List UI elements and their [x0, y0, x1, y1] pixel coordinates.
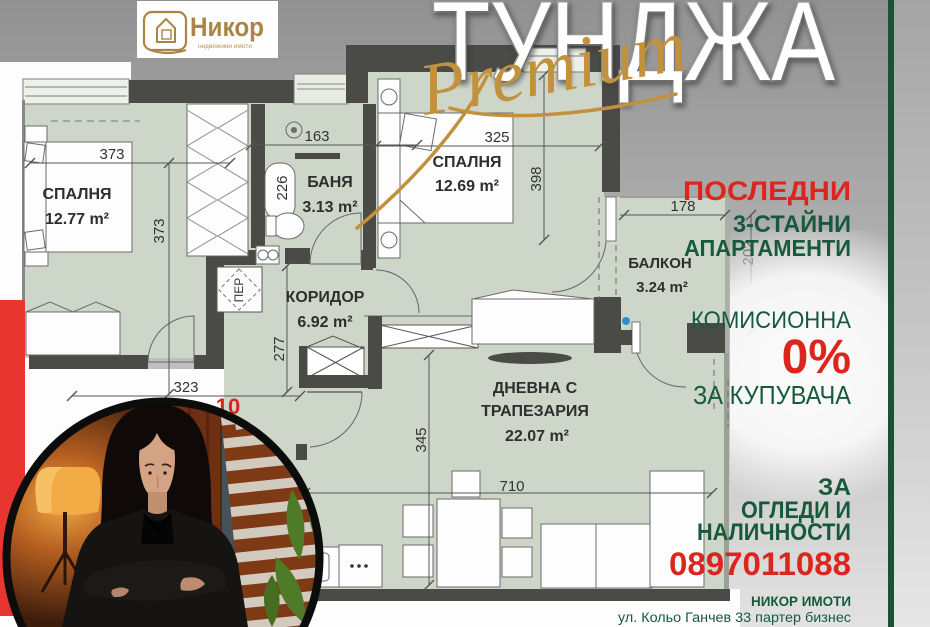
svg-text:НИКОР ИМОТИ: НИКОР ИМОТИ [751, 593, 851, 609]
svg-text:398: 398 [528, 166, 545, 191]
svg-text:3.13 m²: 3.13 m² [302, 199, 357, 216]
svg-text:345: 345 [413, 427, 430, 452]
svg-text:373: 373 [151, 218, 168, 243]
svg-text:АПАРТАМЕНТИ: АПАРТАМЕНТИ [684, 235, 851, 261]
svg-text:226: 226 [274, 175, 291, 200]
svg-text:ул. Кольо Ганчев 33 партер биз: ул. Кольо Ганчев 33 партер бизнес [618, 609, 851, 625]
svg-text:163: 163 [304, 128, 329, 145]
svg-text:БАНЯ: БАНЯ [307, 174, 353, 191]
svg-text:Никор: Никор [190, 12, 264, 42]
svg-text:325: 325 [484, 129, 509, 146]
svg-text:ПЕР: ПЕР [232, 278, 246, 303]
svg-text:0%: 0% [782, 331, 851, 384]
svg-text:3-СТАЙНИ: 3-СТАЙНИ [733, 210, 851, 238]
svg-text:12.77 m²: 12.77 m² [45, 211, 109, 228]
svg-text:СПАЛНЯ: СПАЛНЯ [42, 186, 111, 203]
svg-text:ЗА КУПУВАЧА: ЗА КУПУВАЧА [693, 380, 852, 410]
svg-text:ПОСЛЕДНИ: ПОСЛЕДНИ [683, 176, 851, 206]
svg-text:6.92 m²: 6.92 m² [297, 314, 352, 331]
svg-text:3.24 m²: 3.24 m² [636, 279, 688, 296]
svg-text:ДНЕВНА С: ДНЕВНА С [493, 380, 578, 397]
svg-text:КОМИСИОННА: КОМИСИОННА [691, 307, 851, 334]
svg-text:0897011088: 0897011088 [669, 546, 851, 582]
svg-text:12.69 m²: 12.69 m² [435, 178, 499, 195]
svg-text:ТРАПЕЗАРИЯ: ТРАПЕЗАРИЯ [481, 403, 589, 420]
svg-text:КОРИДОР: КОРИДОР [286, 289, 365, 306]
svg-text:323: 323 [173, 379, 198, 396]
svg-text:СПАЛНЯ: СПАЛНЯ [432, 154, 501, 171]
svg-text:277: 277 [271, 336, 288, 361]
svg-text:недвижими имоти: недвижими имоти [198, 43, 252, 50]
svg-text:БАЛКОН: БАЛКОН [628, 255, 691, 272]
svg-text:22.07 m²: 22.07 m² [505, 428, 569, 445]
svg-text:373: 373 [99, 146, 124, 163]
svg-text:НАЛИЧНОСТИ: НАЛИЧНОСТИ [697, 519, 851, 546]
svg-text:710: 710 [499, 478, 524, 495]
